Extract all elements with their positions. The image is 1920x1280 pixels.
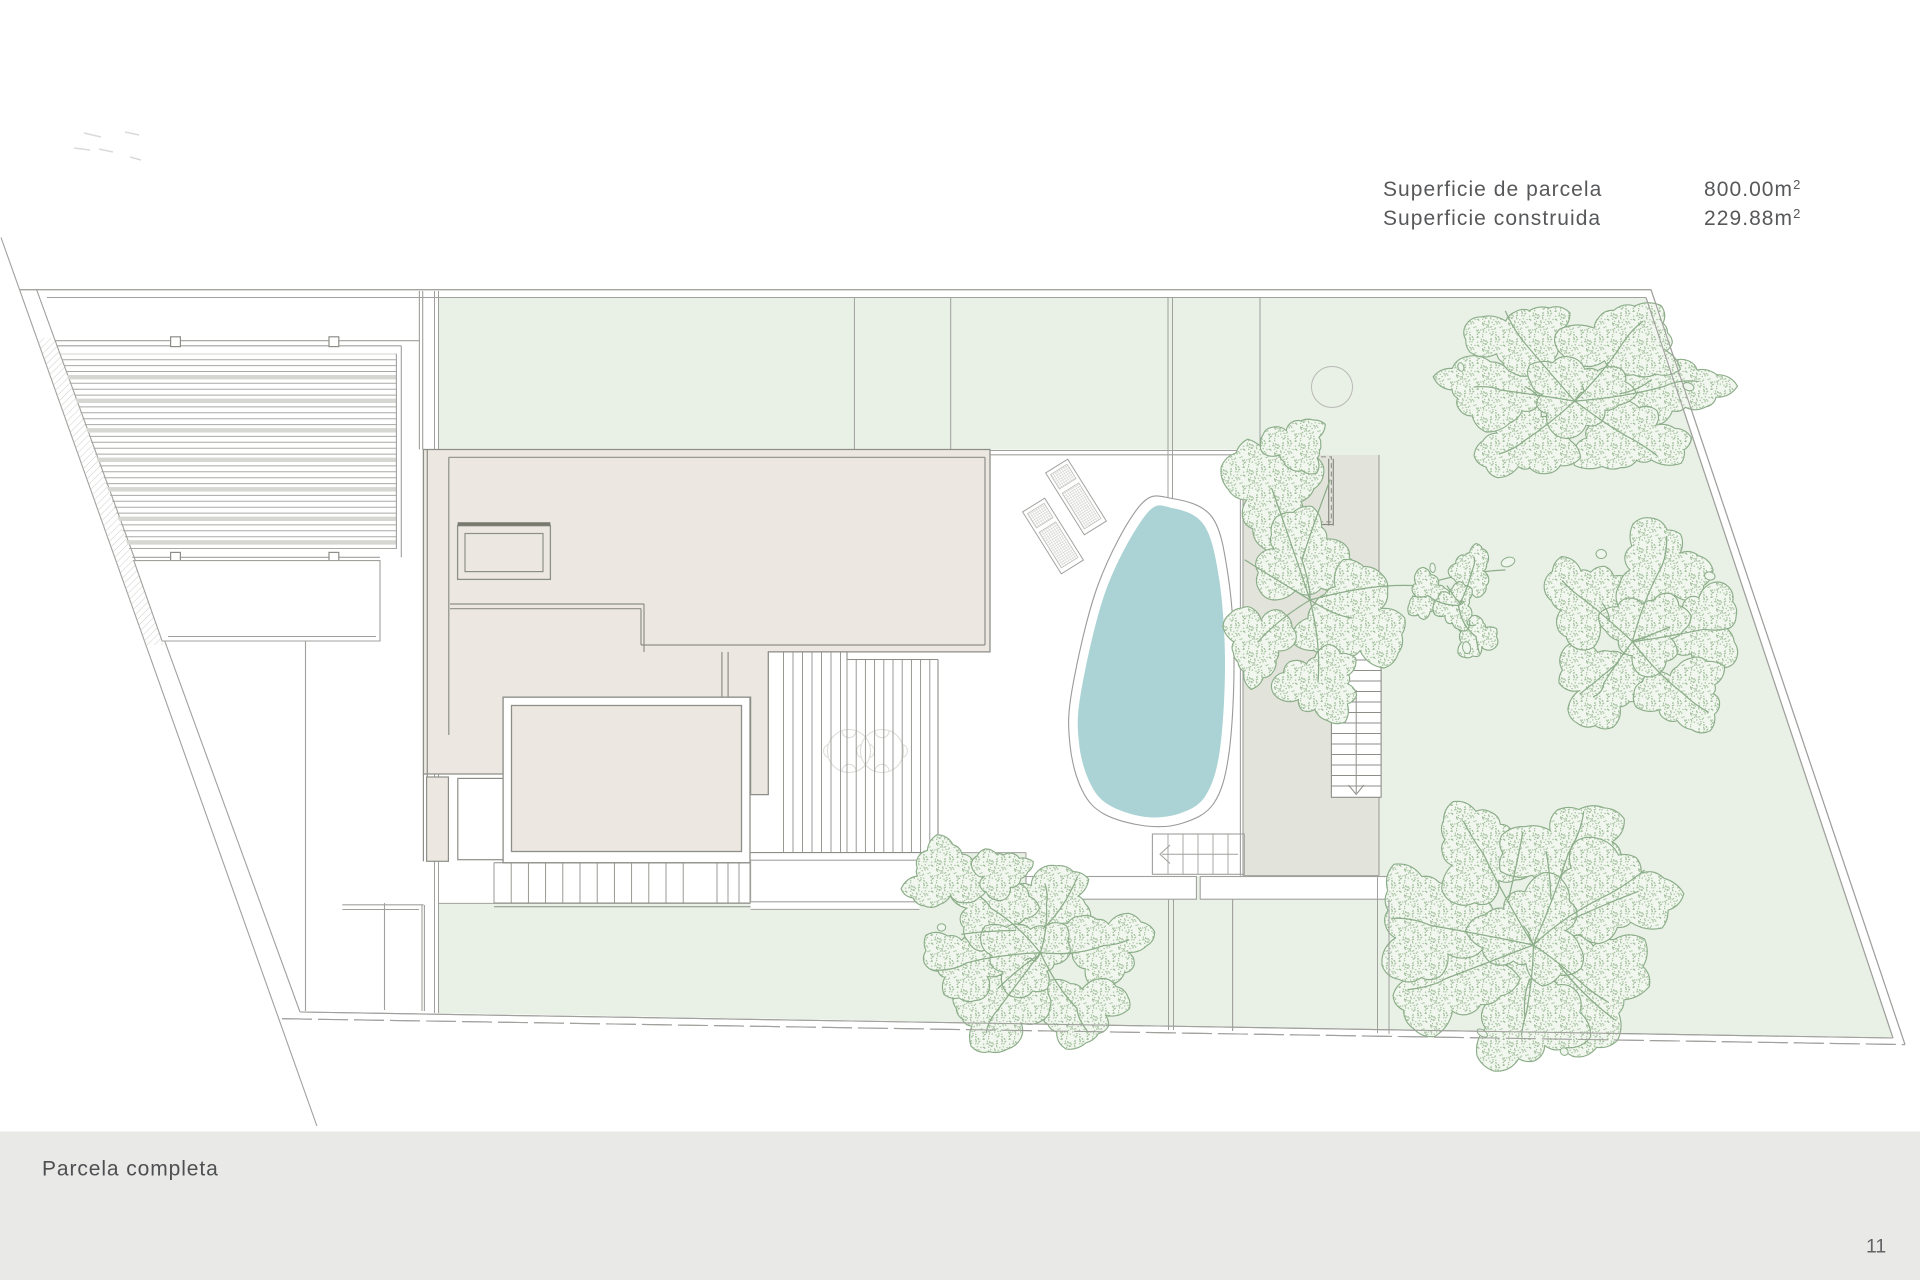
- svg-text:Superficie de parcela: Superficie de parcela: [1383, 178, 1602, 201]
- svg-text:Superficie construida: Superficie construida: [1383, 207, 1601, 230]
- svg-text:11: 11: [1866, 1236, 1886, 1258]
- svg-text:800.00m2: 800.00m2: [1704, 177, 1801, 201]
- svg-text:229.88m2: 229.88m2: [1704, 206, 1801, 230]
- svg-text:Parcela completa: Parcela completa: [42, 1158, 219, 1181]
